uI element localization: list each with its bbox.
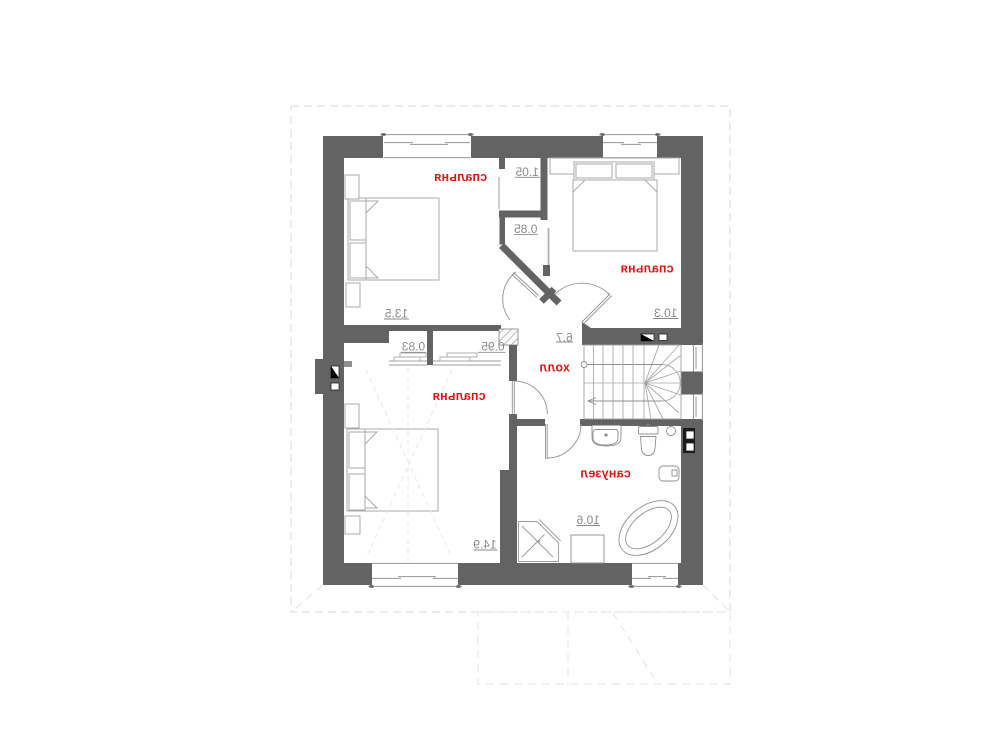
svg-text:спальня: спальня	[434, 170, 487, 184]
svg-text:0.95: 0.95	[481, 340, 505, 354]
svg-text:холл: холл	[539, 361, 570, 375]
svg-text:спальня: спальня	[620, 262, 673, 276]
svg-text:10.3: 10.3	[654, 306, 678, 320]
svg-text:0.83: 0.83	[401, 340, 425, 354]
svg-text:13.5: 13.5	[384, 307, 408, 321]
svg-text:1.05: 1.05	[515, 165, 539, 179]
svg-text:10.6: 10.6	[576, 513, 600, 527]
svg-text:14.9: 14.9	[473, 538, 497, 552]
svg-text:0.85: 0.85	[514, 222, 538, 236]
svg-text:санузел: санузел	[580, 467, 631, 481]
svg-text:спальня: спальня	[432, 389, 485, 403]
